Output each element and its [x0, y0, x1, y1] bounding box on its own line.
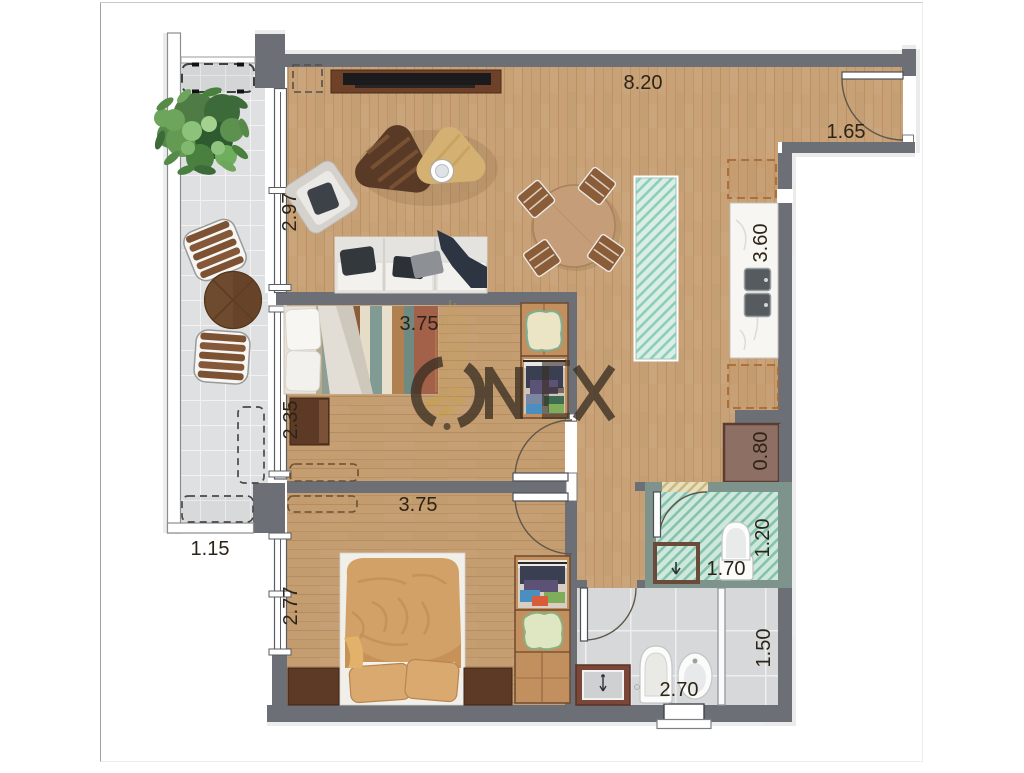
svg-text:2.35: 2.35: [280, 401, 302, 440]
svg-text:1.50: 1.50: [753, 629, 775, 668]
svg-text:3.60: 3.60: [750, 224, 772, 263]
svg-text:1.70: 1.70: [707, 558, 746, 580]
svg-text:3.75: 3.75: [399, 494, 438, 516]
svg-text:3.75: 3.75: [400, 313, 439, 335]
svg-text:2.70: 2.70: [660, 679, 699, 701]
svg-text:0.80: 0.80: [750, 432, 772, 471]
svg-text:8.20: 8.20: [624, 72, 663, 94]
svg-text:2.97: 2.97: [279, 193, 301, 232]
svg-text:1.20: 1.20: [752, 519, 774, 558]
svg-text:1.65: 1.65: [827, 121, 866, 143]
svg-text:2.77: 2.77: [280, 587, 302, 626]
svg-text:1.15: 1.15: [191, 538, 230, 560]
